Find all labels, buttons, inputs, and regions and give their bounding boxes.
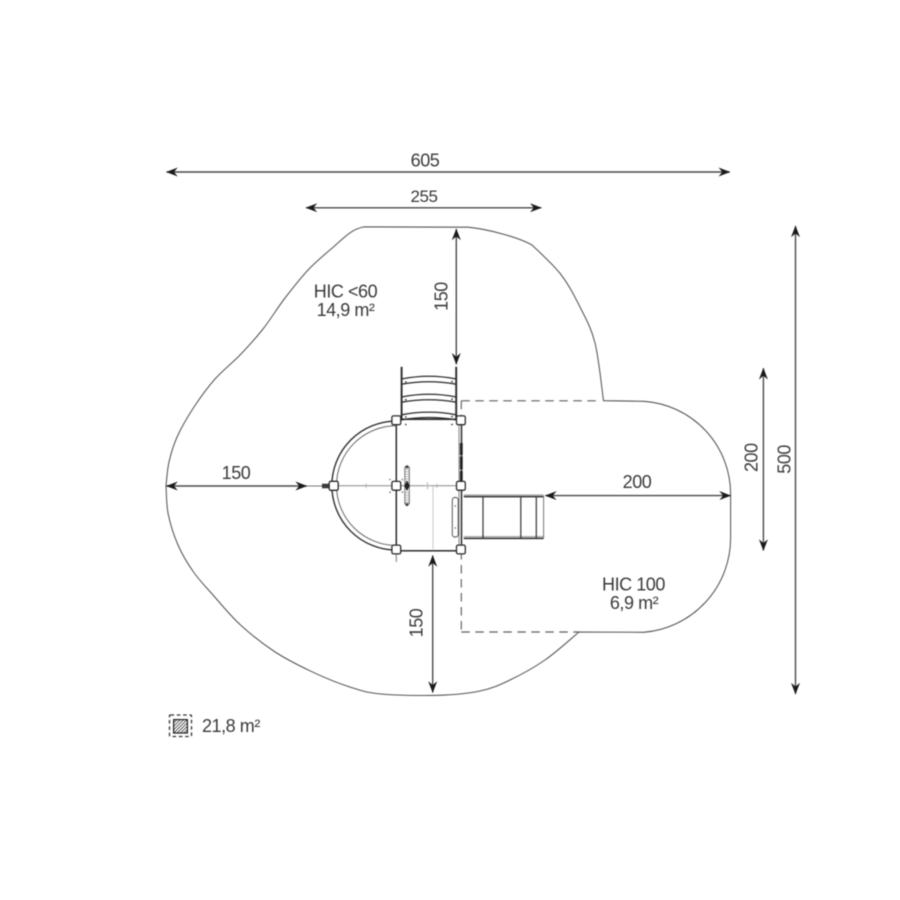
svg-text:HIC 100: HIC 100 <box>602 575 665 595</box>
svg-text:200: 200 <box>623 472 652 492</box>
svg-text:21,8 m²: 21,8 m² <box>202 716 260 736</box>
svg-text:150: 150 <box>432 282 452 311</box>
svg-text:150: 150 <box>407 608 427 637</box>
svg-text:150: 150 <box>222 463 251 483</box>
svg-text:255: 255 <box>410 187 437 206</box>
svg-text:14,9 m²: 14,9 m² <box>317 300 375 320</box>
svg-text:500: 500 <box>775 445 795 474</box>
svg-text:6,9 m²: 6,9 m² <box>610 593 659 613</box>
svg-text:605: 605 <box>411 151 440 171</box>
svg-text:200: 200 <box>742 443 762 472</box>
svg-text:HIC <60: HIC <60 <box>314 282 378 302</box>
